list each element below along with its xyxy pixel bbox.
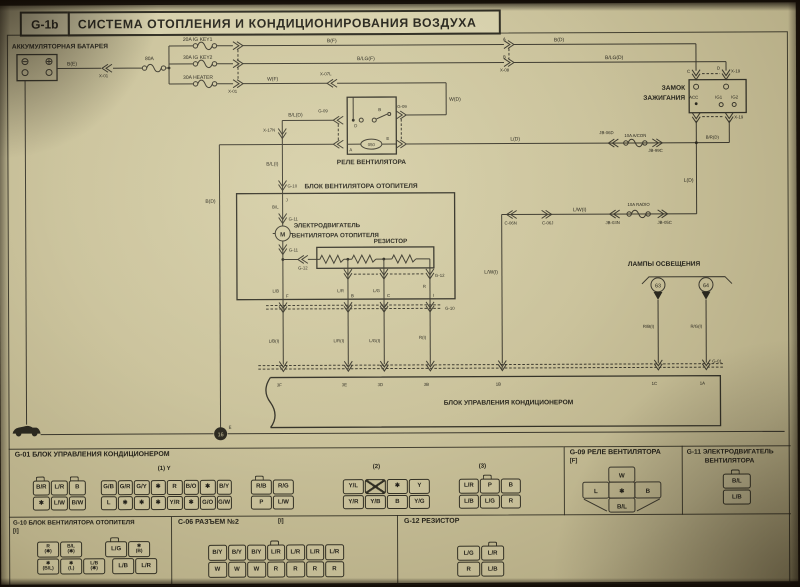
wire-label-rgi: R/G(I) (690, 324, 702, 329)
pin-3f: 3F (277, 383, 282, 388)
wire-label-r: R (423, 284, 426, 289)
connector-cell: ✱(B/L) (37, 558, 59, 574)
page-title: СИСТЕМА ОТОПЛЕНИЯ И КОНДИЦИОНИРОВАНИЯ ВО… (78, 15, 477, 31)
connector-cell: R/B (251, 480, 272, 495)
ac-control-unit: G-01 3F 3E 3D 3B 1B 1C 1A БЛОК УПРАВЛЕНИ… (258, 359, 724, 428)
pin-f: F (286, 293, 289, 298)
connector-x08: X-08 (500, 68, 510, 73)
connector-x01-battery: X-01 (99, 73, 109, 78)
connector-cell: Y (409, 479, 430, 494)
connector-cell: ✱ (150, 496, 166, 511)
section-g10-tag: [I] (13, 529, 19, 535)
connector-jb06d: JB-06D (599, 130, 613, 135)
connector-cell: R (286, 561, 305, 577)
fuse-acon-label: 10A A/CON (624, 133, 646, 138)
connector-cell: ✱ (33, 496, 50, 511)
connector-cell: Y/L (343, 479, 364, 494)
pin-c-fan: C (387, 293, 390, 298)
wire-label-blgd: B/LG(D) (605, 55, 624, 61)
connector-cell: B/R (33, 481, 50, 496)
wire-label-lb: L/B (273, 289, 280, 294)
section-g10: G-10 БЛОК ВЕНТИЛЯТОРА ОТОПИТЕЛЯ [I] R(✱)… (9, 516, 171, 586)
connector-cell: W (228, 562, 247, 578)
pin-3e: 3E (342, 382, 347, 387)
pin-x08-a: A (503, 37, 506, 42)
pin-acc: ACC (689, 95, 698, 100)
wire-label-bl: B/L (272, 205, 279, 210)
ground-point-16: 16 (218, 432, 224, 438)
relay-title: РЕЛЕ ВЕНТИЛЯТОРА (337, 159, 407, 166)
connector-jb05c: JB-05C (658, 220, 672, 225)
connector-cell: B (501, 478, 521, 493)
connector-cell: L/R (267, 544, 286, 560)
relay-pin-b: B (378, 107, 381, 112)
wire-label-bld: B/L(D) (288, 112, 303, 118)
g09-connector-drawing: W L ✱ B B/L (579, 466, 669, 514)
connector-g12-right: G-12 (435, 273, 445, 278)
connector-cell: B/Y (216, 480, 232, 495)
relay-pin-d: D (354, 123, 357, 128)
wire-label-wd: W(D) (449, 97, 461, 103)
g01-grid-conn3: L/RPBL/BL/GR (459, 478, 521, 508)
manual-page: G-1b СИСТЕМА ОТОПЛЕНИЯ И КОНДИЦИОНИРОВАН… (0, 2, 798, 584)
connector-cell: L/R (325, 544, 344, 560)
wire-label-be: B(E) (67, 61, 77, 67)
relay-pin-a: A (349, 147, 352, 152)
connector-g01-ref: G-01 (712, 359, 722, 364)
connector-cell: L/R (51, 480, 68, 495)
section-g01-title: G-01 БЛОК УПРАВЛЕНИЯ КОНДИЦИОНЕРОМ (15, 451, 170, 459)
connector-cell: R (267, 561, 286, 577)
connector-cell: ✱ (117, 496, 133, 511)
wire-label-lri: L/R(I) (333, 338, 344, 343)
section-g01-tag2: (2) (373, 464, 380, 470)
pin-3b: 3B (424, 382, 429, 387)
pin-b-fan: B (351, 293, 354, 298)
connector-cell: B/O (183, 480, 199, 495)
section-g09-title: G-09 РЕЛЕ ВЕНТИЛЯТОРА (570, 449, 661, 456)
ground-wires: 16 E (11, 77, 785, 441)
connector-cell: L/G (105, 541, 127, 557)
ignition-switch: C D X-19 ACC IG1 IG2 ЗАМОК ЗАЖИГАНИЯ X-1… (643, 65, 747, 213)
wire-label-wf: W(F) (267, 77, 278, 83)
lamps-title: ЛАМПЫ ОСВЕЩЕНИЯ (628, 261, 701, 268)
battery-label: АККУМУЛЯТОРНАЯ БАТАРЕЯ (12, 43, 108, 50)
ground-pin-e: E (229, 425, 232, 430)
resistor-title: РЕЗИСТОР (374, 238, 407, 245)
connector-g11-bottom: G-11 (289, 247, 299, 252)
connector-cell: R (457, 562, 480, 577)
feed-run-wires: B(F) B/LG(F) W(F) X-07L A B X-08 B(D) B/… (243, 36, 726, 88)
relay-coil-label: 050 (368, 142, 376, 147)
page-code-box: G-1b (20, 11, 70, 36)
connector-cell: R(✱) (37, 541, 59, 557)
ignition-label-2: ЗАЖИГАНИЯ (643, 95, 685, 102)
pin-1b: 1B (496, 382, 501, 387)
connector-cell: B/L(✱) (60, 541, 82, 557)
connector-cell: B/W (69, 496, 86, 511)
connector-g10-top: G-10 (288, 183, 298, 188)
fuse-igkey2-label: 30A IG KEY2 (183, 55, 213, 61)
connector-cell: B/Y (247, 545, 266, 561)
connector-cell: L/B (112, 558, 134, 574)
fuse-radio-label: 10A RADIO (627, 202, 650, 207)
section-g11-title-1: G-11 ЭЛЕКТРОДВИГАТЕЛЬ (687, 448, 774, 455)
section-g12-title: G-12 РЕЗИСТОР (404, 518, 459, 525)
connector-x19-top: X-19 (731, 69, 741, 74)
connector-cell: P (480, 479, 500, 494)
wire-label-ld1: L(D) (510, 136, 520, 142)
wire-label-lwi-h: L/W(I) (573, 207, 587, 213)
connector-cell: Y/R (167, 495, 183, 510)
connector-cell: L/B (481, 562, 504, 577)
pin-ig2: IG2 (731, 95, 739, 100)
g11-grid: B/LL/B (723, 473, 751, 504)
connector-cell: P (251, 495, 272, 510)
g10-grid-b1: L/G✱(B) (105, 541, 150, 557)
ignition-label-1: ЗАМОК (662, 85, 687, 92)
wire-label-ri: R(I) (419, 335, 427, 340)
connector-cell: B/Y (228, 545, 247, 561)
wire-label-lgi: L/G(I) (369, 338, 381, 343)
wire-label-lr: L/R (337, 288, 344, 293)
connector-cell: W (247, 562, 266, 578)
pin-ign-d: D (717, 66, 720, 71)
control-unit-title: БЛОК УПРАВЛЕНИЯ КОНДИЦИОНЕРОМ (444, 399, 574, 407)
connector-g09-left: G-09 (318, 108, 328, 113)
connector-x19-bottom: X-19 (734, 114, 744, 119)
connector-jb99c: JB-99C (648, 148, 662, 153)
pin-i: I (433, 293, 434, 298)
connector-cell: G/B (101, 480, 117, 495)
connector-g11-top: G-11 (289, 216, 299, 221)
connector-c06j: C-06J (542, 220, 553, 225)
connector-cell: L/G (457, 546, 480, 561)
section-g01-tag1: (1) Y (158, 466, 171, 472)
connector-cell: ✱ (150, 480, 166, 495)
lighting-lamps: ЛАМПЫ ОСВЕЩЕНИЯ 63 R/B(I) 64 R/G(I) (628, 261, 732, 363)
connector-cell: L/R (135, 558, 157, 574)
fan-unit-title: БЛОК ВЕНТИЛЯТОРА ОТОПИТЕЛЯ (305, 183, 418, 190)
connector-cell: ✱ (200, 480, 216, 495)
battery: АККУМУЛЯТОРНАЯ БАТАРЕЯ (12, 43, 109, 80)
wire-label-bd-ground: B(D) (205, 199, 216, 205)
section-g11: G-11 ЭЛЕКТРОДВИГАТЕЛЬ ВЕНТИЛЯТОРА B/LL/B (682, 445, 791, 514)
section-c06: C-06 РАЗЪЕМ №2 [I] B/YB/YB/YL/RL/RL/RL/R… (171, 515, 398, 585)
connector-cell: ✱(L) (60, 558, 82, 574)
connector-cell: L/B (459, 494, 479, 509)
wire-label-brd: B/R(D) (706, 135, 720, 140)
connector-cell: L/B (723, 489, 751, 504)
manual-page-photo: G-1b СИСТЕМА ОТОПЛЕНИЯ И КОНДИЦИОНИРОВАН… (0, 0, 800, 587)
connector-x17n: X-17N (263, 128, 275, 133)
g09-pin-bl: B/L (617, 504, 627, 511)
pin-x08-b: B (503, 55, 506, 60)
connector-cell: R (167, 480, 183, 495)
connector-cell: G/R (117, 480, 133, 495)
connector-cell: L/R (459, 479, 479, 494)
g01-grid-3: R/BR/GPL/W (251, 479, 294, 509)
fuse-80a-label: 80A (145, 56, 155, 62)
section-g01-tag3: (3) (479, 464, 486, 470)
connector-cell: L/B(✱) (83, 558, 105, 574)
connector-cell: L/W (51, 496, 68, 511)
section-c06-title: C-06 РАЗЪЕМ №2 (178, 519, 239, 526)
section-g01: G-01 БЛОК УПРАВЛЕНИЯ КОНДИЦИОНЕРОМ (1) Y… (9, 446, 564, 517)
connector-g12-left: G-12 (298, 265, 308, 270)
connector-cell: L/G (480, 494, 500, 509)
connector-cell: L/R (306, 544, 325, 560)
connector-cell (365, 479, 386, 494)
wire-label-blgf: B/LG(F) (357, 56, 375, 62)
connector-c06n: C-06N (504, 220, 516, 225)
fuse-igkey1-label: 20A IG KEY1 (183, 37, 213, 43)
wire-label-lbi: L/B(I) (269, 339, 280, 344)
connector-cell: Y/B (365, 495, 386, 510)
g09-pin-b: B (646, 488, 651, 495)
connector-cell: W (208, 562, 227, 578)
connector-cell: R (325, 561, 344, 577)
g01-grid-2: G/BG/RG/Y✱RB/O✱B/YL✱✱✱Y/R✱G/OG/W (101, 480, 232, 511)
connector-cell: B/Y (208, 545, 227, 561)
pin-ign-c: C (687, 69, 690, 74)
c06-grid: B/YB/YB/YL/RL/RL/RL/RWWWRRRR (208, 544, 344, 578)
connector-cell: L/R (286, 544, 305, 560)
connector-jb03n: JB-03N (606, 220, 620, 225)
connector-cell: R/G (273, 479, 294, 494)
wire-label-rbi: R/B(I) (643, 324, 655, 329)
connector-g10-bottom: G-10 (445, 306, 455, 311)
fuse-heater-label: 30A HEATER (183, 75, 213, 81)
connector-cell: Y/G (409, 494, 430, 509)
connector-cell: G/Y (134, 480, 150, 495)
connector-cell: Y/R (343, 495, 364, 510)
connector-cell: R (306, 561, 325, 577)
fan-to-control-wires: G-10 L/B(I) L/R(I) L/G(I) R(I) (266, 299, 455, 365)
connector-x01-fuses: X-01 (228, 89, 238, 94)
pin-1c: 1C (652, 381, 658, 386)
section-g10-title: G-10 БЛОК ВЕНТИЛЯТОРА ОТОПИТЕЛЯ (13, 519, 135, 527)
connector-cell: L/W (273, 495, 294, 510)
lamp-63: 63 (655, 283, 661, 289)
connector-cell: B (69, 480, 86, 495)
connector-cell: B/L (723, 473, 751, 488)
wire-label-bli: B/L(I) (266, 162, 279, 168)
connector-x07l: X-07L (320, 71, 332, 76)
relay-pin-e: E (386, 136, 389, 141)
g09-pin-w: W (619, 473, 625, 480)
g10-grid-a1: R(✱)B/L(✱) (37, 541, 82, 557)
connector-cell: ✱ (134, 496, 150, 511)
motor-title-2: ВЕНТИЛЯТОРА ОТОПИТЕЛЯ (292, 232, 380, 239)
wire-label-lg: L/G (373, 288, 381, 293)
g12-grid: L/GL/RRL/B (457, 546, 504, 577)
motor-symbol: M (280, 231, 285, 238)
connector-cell: G/O (200, 495, 216, 510)
connector-cell: L (101, 496, 117, 511)
wire-label-bd: B(D) (554, 37, 565, 43)
connector-cell: ✱ (387, 479, 408, 494)
section-g11-title-2: ВЕНТИЛЯТОРА (705, 457, 755, 464)
g01-grid-1: B/RL/RB✱L/WB/W (33, 480, 86, 510)
section-g09-tag: [F] (570, 458, 578, 464)
page-code: G-1b (31, 17, 58, 31)
pin-1a: 1A (700, 381, 705, 386)
connector-cell: R (501, 494, 521, 509)
wire-label-bf: B(F) (327, 38, 337, 44)
lamp-64: 64 (703, 283, 709, 289)
connector-cell: G/W (216, 495, 232, 510)
section-g12: G-12 РЕЗИСТОР L/GL/RRL/B (397, 513, 791, 584)
connector-cell: B (387, 494, 408, 509)
section-g09: G-09 РЕЛЕ ВЕНТИЛЯТОРА [F] W L ✱ B B/L (564, 446, 683, 516)
g10-grid-b2: L/BL/R (112, 558, 157, 574)
heater-fan-unit: X-17N B/L(I) G-10 БЛОК ВЕНТИЛЯТОРА ОТОПИ… (236, 120, 455, 300)
fan-relay: W(D) G-09 B/L(D) D B G-09 050 A E РЕЛЕ В… (205, 83, 463, 428)
connector-g09-right: G-09 (397, 104, 407, 109)
motor-title-1: ЭЛЕКТРОДВИГАТЕЛЬ (294, 222, 361, 229)
g10-grid-a2: ✱(B/L)✱(L)L/B(✱) (37, 558, 105, 574)
g01-grid-conn2: Y/L✱YY/RY/BBY/G (343, 479, 430, 509)
connector-cell: ✱ (183, 495, 199, 510)
wire-label-ld2: L(D) (684, 178, 694, 184)
pin-ig1: IG1 (715, 95, 723, 100)
connector-cell: L/R (481, 546, 504, 561)
pin-3d: 3D (378, 382, 384, 387)
pin-j: J (286, 197, 288, 202)
wire-label-lwi-v: L/W(I) (484, 270, 498, 276)
connector-cell: ✱(B) (128, 541, 150, 557)
g09-pin-l: L (594, 488, 598, 495)
section-c06-tag: [I] (278, 519, 284, 525)
g09-pin-star: ✱ (619, 488, 624, 495)
wiring-diagram-svg: АККУМУЛЯТОРНАЯ БАТАРЕЯ B(E) X-01 80A 20A… (7, 31, 788, 448)
